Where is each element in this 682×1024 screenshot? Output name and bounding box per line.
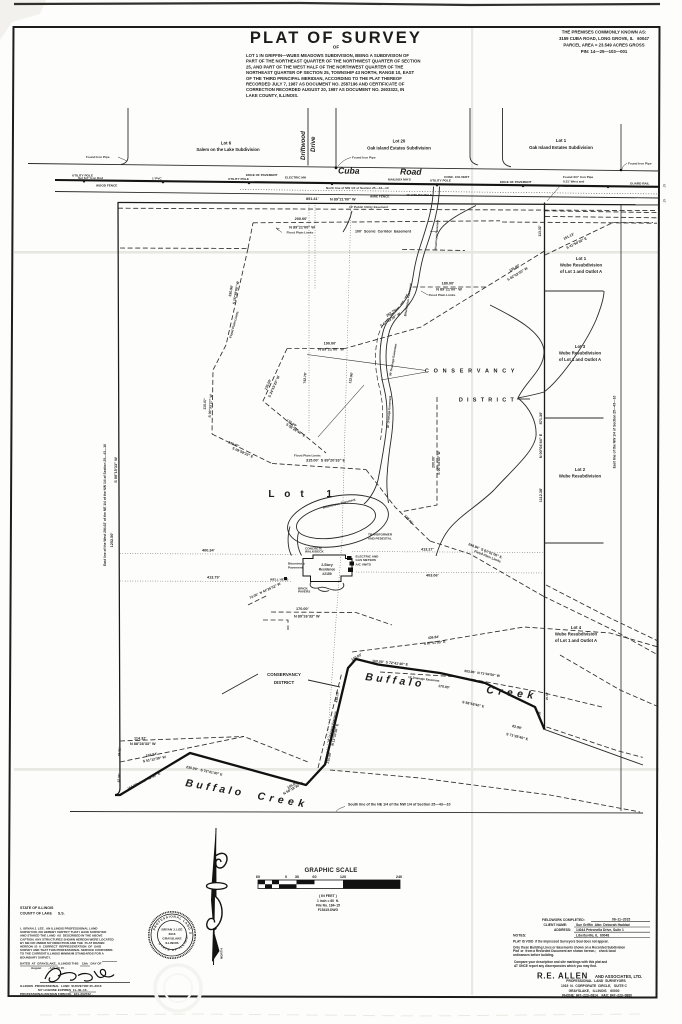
svg-text:RECORDED JULY 7, 1987 AS DOCUM: RECORDED JULY 7, 1987 AS DOCUMENT NO. 25… — [246, 82, 405, 87]
svg-text:LOT 1 IN GRIFFIN—WUBS MEADOWS: LOT 1 IN GRIFFIN—WUBS MEADOWS SUBDIVISIO… — [246, 53, 409, 58]
svg-text:August , A.D. 20 15 .: August , A.D. 20 15 . — [31, 966, 66, 970]
svg-text:Drive: Drive — [310, 136, 317, 152]
svg-text:ELECTRIC MH: ELECTRIC MH — [285, 176, 307, 180]
svg-text:UTILITY POLE: UTILITY POLE — [228, 177, 249, 181]
svg-text:60: 60 — [256, 875, 260, 879]
svg-text:FIELDWORK COMPLETED:: FIELDWORK COMPLETED: — [542, 918, 585, 922]
svg-text:Lot 4: Lot 4 — [571, 625, 582, 630]
svg-text:CLIENT NAME:: CLIENT NAME: — [544, 923, 568, 927]
svg-text:Found Iron Pipe: Found Iron Pipe — [86, 155, 110, 159]
svg-text:GRAYSLAKE: GRAYSLAKE — [162, 937, 181, 941]
svg-text:200.00’: 200.00’ — [295, 217, 308, 221]
svg-text:DISTRICT: DISTRICT — [274, 680, 295, 685]
svg-text:L o t 1: L o t 1 — [268, 489, 335, 500]
svg-text:06–11–2015: 06–11–2015 — [612, 918, 630, 922]
svg-text:WALK/DECK: WALK/DECK — [305, 550, 324, 554]
svg-text:170.00’: 170.00’ — [296, 607, 309, 611]
svg-text:of Lot 1 and Outlot A: of Lot 1 and Outlot A — [555, 638, 597, 643]
svg-text:315.00’ S 89°20’33” E: 315.00’ S 89°20’33” E — [306, 459, 346, 463]
svg-text:Lot 1: Lot 1 — [556, 138, 567, 143]
svg-text:UTILITY POLE: UTILITY POLE — [72, 174, 93, 178]
svg-text:EDGE OF PAVEMENT: EDGE OF PAVEMENT — [246, 173, 278, 177]
svg-text:COUNTY OF LAKE S.S.: COUNTY OF LAKE S.S. — [20, 912, 65, 916]
svg-text:ordinances before building.: ordinances before building. — [513, 953, 554, 957]
svg-text:Oak Island Estates Subdivision: Oak Island Estates Subdivision — [529, 145, 593, 150]
svg-text:Salem on the Lake Subdivision: Salem on the Lake Subdivision — [196, 147, 260, 152]
svg-text:NOTES:: NOTES: — [513, 933, 526, 937]
svg-text:OF: OF — [333, 45, 340, 50]
svg-text:North line of NW 1/4 of Sectio: North line of NW 1/4 of Section 25—43—10 — [326, 186, 389, 190]
svg-text:MAILBOX MH’S: MAILBOX MH’S — [388, 178, 411, 182]
svg-text:Lot 20: Lot 20 — [393, 139, 406, 144]
svg-text:South line of the NE 1/4 of th: South line of the NE 1/4 of the NW 1/4 o… — [348, 803, 450, 807]
svg-text:Flood Plain Limits: Flood Plain Limits — [287, 231, 314, 235]
svg-text:Found 3/4” Iron Pipe: Found 3/4” Iron Pipe — [563, 175, 594, 179]
svg-text:Oak Island Estates Subdivision: Oak Island Estates Subdivision — [367, 146, 431, 151]
svg-text:UTILITY POLE: UTILITY POLE — [430, 179, 451, 183]
svg-text:1 inch = 60 ft.: 1 inch = 60 ft. — [317, 899, 339, 903]
svg-text:N 89°21’00” W: N 89°21’00” W — [436, 288, 462, 292]
svg-text:N 89°21’00” W: N 89°21’00” W — [318, 348, 344, 352]
svg-text:PAVERS: PAVERS — [298, 590, 310, 594]
svg-text:3616: 3616 — [169, 932, 176, 936]
svg-text:PROFESSIONAL LAND SURVEYORS: PROFESSIONAL LAND SURVEYORS — [566, 979, 626, 983]
svg-text:Driftwood: Driftwood — [300, 131, 307, 160]
svg-text:100’ Scenic Corridor Easeme: 100’ Scenic Corridor Easement — [355, 230, 412, 234]
svg-text:LAKE COUNTY, ILLINOIS.: LAKE COUNTY, ILLINOIS. — [246, 93, 298, 98]
svg-text:Road: Road — [400, 167, 422, 177]
svg-text:742.78’: 742.78’ — [303, 372, 308, 384]
svg-text:GRAYSLAKE, ILLINOIS 60030: GRAYSLAKE, ILLINOIS 60030 — [569, 989, 620, 993]
svg-text:F15415.DWG: F15415.DWG — [318, 908, 339, 912]
svg-text:62.96’: 62.96’ — [117, 773, 122, 782]
svg-text:Found Iron Pipe: Found Iron Pipe — [352, 156, 376, 160]
svg-text:D I S T R I C T: D I S T R I C T — [459, 398, 515, 404]
svg-text:180.00’: 180.00’ — [442, 282, 455, 286]
svg-text:PART OF THE NORTHEAST QUARTER: PART OF THE NORTHEAST QUARTER OF THE NOR… — [246, 59, 420, 64]
svg-text:PARCEL AREA = 23.549 ACRES GRO: PARCEL AREA = 23.549 ACRES GROSS — [563, 43, 644, 48]
svg-text:1’ PVC: 1’ PVC — [152, 177, 162, 181]
svg-text:East line of the NW 1/4 of Sec: East line of the NW 1/4 of Section 25—43… — [613, 396, 617, 469]
svg-text:PHONE: 847–223–0814 FAX: 84: PHONE: 847–223–0814 FAX: 847–223–0880 — [562, 994, 632, 998]
svg-text:ADDRESS:: ADDRESS: — [554, 928, 571, 932]
svg-text:C O N S E R V A N C Y: C O N S E R V A N C Y — [425, 369, 516, 375]
svg-text:Residence: Residence — [319, 568, 336, 572]
svg-text:GAS METERS: GAS METERS — [356, 558, 376, 562]
svg-text:Lot 1: Lot 1 — [576, 256, 587, 261]
svg-text:1.68’ South of corner: 1.68’ South of corner — [563, 184, 594, 188]
svg-text:0.31’ West and: 0.31’ West and — [563, 180, 584, 184]
svg-text:Cuba: Cuba — [338, 166, 360, 176]
svg-text:200.00’: 200.00’ — [432, 456, 436, 468]
svg-text:PIN: 14—25—103—001: PIN: 14—25—103—001 — [581, 49, 628, 54]
svg-text:25, AND PART OF THE WEST HALF: 25, AND PART OF THE WEST HALF OF THE NOR… — [246, 64, 403, 69]
svg-text:BOUNDARY SURVEY.: BOUNDARY SURVEY. — [20, 955, 51, 959]
svg-text:File No. 184–15: File No. 184–15 — [316, 904, 340, 908]
svg-text:115.07’: 115.07’ — [203, 398, 208, 410]
svg-text:N 89°21’00” W: N 89°21’00” W — [289, 226, 315, 230]
svg-text:THE PREMISES COMMONLY KNOWN AS: THE PREMISES COMMONLY KNOWN AS: — [562, 30, 647, 35]
svg-text:PLAT IS VOID if the Impressed: PLAT IS VOID if the Impressed Surveyors … — [513, 939, 609, 943]
svg-text:0: 0 — [285, 875, 287, 879]
svg-text:( IN FEET ): ( IN FEET ) — [319, 894, 337, 898]
svg-text:403.06’: 403.06’ — [426, 574, 439, 578]
svg-text:240: 240 — [396, 875, 402, 879]
svg-text:30: 30 — [295, 875, 299, 879]
svg-text:Lot 6: Lot 6 — [221, 141, 232, 146]
svg-text:GUARD RAIL: GUARD RAIL — [630, 182, 650, 186]
svg-text:1015 N. CORPORATE CIRCLE,: 1015 N. CORPORATE CIRCLE, SUITE C — [561, 984, 628, 988]
svg-text:1252.50’: 1252.50’ — [110, 533, 114, 548]
svg-text:AT ONCE report any discrepanci: AT ONCE report any discrepancies which y… — [514, 964, 597, 968]
svg-text:GRAPHIC SCALE: GRAPHIC SCALE — [304, 867, 357, 874]
svg-text:PROFESSIONAL/DESIGN FIRM NO.: PROFESSIONAL/DESIGN FIRM NO. 184–002732 … — [20, 992, 93, 996]
svg-text:#2159: #2159 — [322, 572, 331, 576]
svg-text:Wube Resubdivision: Wube Resubdivision — [555, 632, 598, 637]
svg-text:of Lot 1 and Outlot A: of Lot 1 and Outlot A — [559, 357, 601, 362]
svg-text:413.27’: 413.27’ — [421, 548, 434, 552]
svg-text:WOOD FENCE: WOOD FENCE — [96, 184, 117, 188]
svg-text:871.30’: 871.30’ — [539, 412, 543, 425]
svg-text:S 00°15’33” W: S 00°15’33” W — [114, 457, 118, 483]
svg-text:Flood Plain Limits: Flood Plain Limits — [294, 454, 321, 458]
svg-text:Wube Resubdivision: Wube Resubdivision — [559, 474, 602, 479]
svg-text:BRYAN J. LEE: BRYAN J. LEE — [162, 928, 183, 932]
svg-text:STATE OF ILLINOIS: STATE OF ILLINOIS — [20, 906, 54, 910]
svg-text:NORTHEAST QUARTER OF SECTION 2: NORTHEAST QUARTER OF SECTION 25, TOWNSHI… — [246, 70, 415, 75]
svg-text:Found Iron Pipe: Found Iron Pipe — [628, 162, 652, 166]
svg-text:Lot 2: Lot 2 — [575, 467, 586, 472]
svg-text:400.34’: 400.34’ — [202, 549, 215, 553]
svg-text:120: 120 — [340, 875, 346, 879]
svg-text:ILLINOIS: ILLINOIS — [165, 941, 178, 945]
svg-text:CONSERVANCY: CONSERVANCY — [267, 672, 301, 677]
svg-text:NORTH: NORTH — [220, 948, 224, 959]
svg-text:Wube Resubdivision: Wube Resubdivision — [560, 263, 603, 268]
svg-text:Libertyville, IL 60048: Libertyville, IL 60048 — [576, 933, 609, 937]
svg-text:N 89°21’00” W: N 89°21’00” W — [330, 198, 356, 202]
svg-text:Sue Griffin Attn: Deborah Had: Sue Griffin Attn: Deborah Haddad — [576, 923, 630, 927]
svg-text:1112.38’: 1112.38’ — [539, 488, 543, 502]
svg-text:10’ Public Utility Easement: 10’ Public Utility Easement — [349, 205, 388, 209]
svg-text:CORRECTION RECORDED AUGUST 20,: CORRECTION RECORDED AUGUST 20, 1987 AS D… — [246, 87, 404, 92]
svg-text:114.32’: 114.32’ — [134, 737, 146, 741]
svg-text:N 00°04’44” E: N 00°04’44” E — [539, 433, 543, 458]
svg-text:S 00°04’44” W: S 00°04’44” W — [437, 451, 441, 475]
svg-text:60: 60 — [312, 875, 316, 879]
svg-text:Wube Resubdivision: Wube Resubdivision — [559, 351, 602, 356]
svg-text:113.32’: 113.32’ — [538, 225, 542, 236]
svg-text:891.41’: 891.41’ — [306, 197, 319, 201]
svg-text:DATED AT GRAYSLAKE, ILLINOI: DATED AT GRAYSLAKE, ILLINOIS THIS 12th D… — [20, 962, 102, 966]
svg-text:2-Story: 2-Story — [321, 563, 333, 567]
svg-text:AND PEDESTAL: AND PEDESTAL — [368, 537, 392, 541]
svg-text:OF THE THIRD PRINCIPAL MERIDIA: OF THE THIRD PRINCIPAL MERIDIAN, ACCORDI… — [246, 76, 402, 81]
svg-text:East line of the West 294.02’: East line of the West 294.02’ of the NE … — [103, 444, 107, 566]
svg-text:40’ UTILITY POLE: 40’ UTILITY POLE — [406, 193, 432, 197]
svg-text:48.21’: 48.21’ — [117, 747, 122, 756]
svg-text:N 88°28’33” W: N 88°28’33” W — [130, 742, 156, 746]
svg-text:413.79’: 413.79’ — [207, 576, 220, 580]
svg-text:EDGE OF PAVEMENT: EDGE OF PAVEMENT — [500, 180, 532, 184]
svg-text:WIRE FENCE: WIRE FENCE — [370, 195, 389, 199]
svg-text:Pavement: Pavement — [288, 566, 303, 570]
svg-text:14044 Petronella Drive, Suite: 14044 Petronella Drive, Suite 1 — [576, 928, 624, 932]
svg-text:A/C UNITS: A/C UNITS — [356, 563, 371, 567]
svg-text:190.00’: 190.00’ — [324, 342, 337, 346]
svg-text:N 89°26’33” W: N 89°26’33” W — [294, 615, 320, 619]
svg-text:Flood Plain Limits: Flood Plain Limits — [429, 293, 456, 297]
svg-text:of Lot 1 and Outlot A: of Lot 1 and Outlot A — [560, 269, 602, 274]
svg-text:3159 CUBA ROAD, LONG GROVE, IL: 3159 CUBA ROAD, LONG GROVE, IL 60047 — [559, 36, 650, 41]
svg-text:CONC. CULVERT: CONC. CULVERT — [444, 175, 469, 179]
